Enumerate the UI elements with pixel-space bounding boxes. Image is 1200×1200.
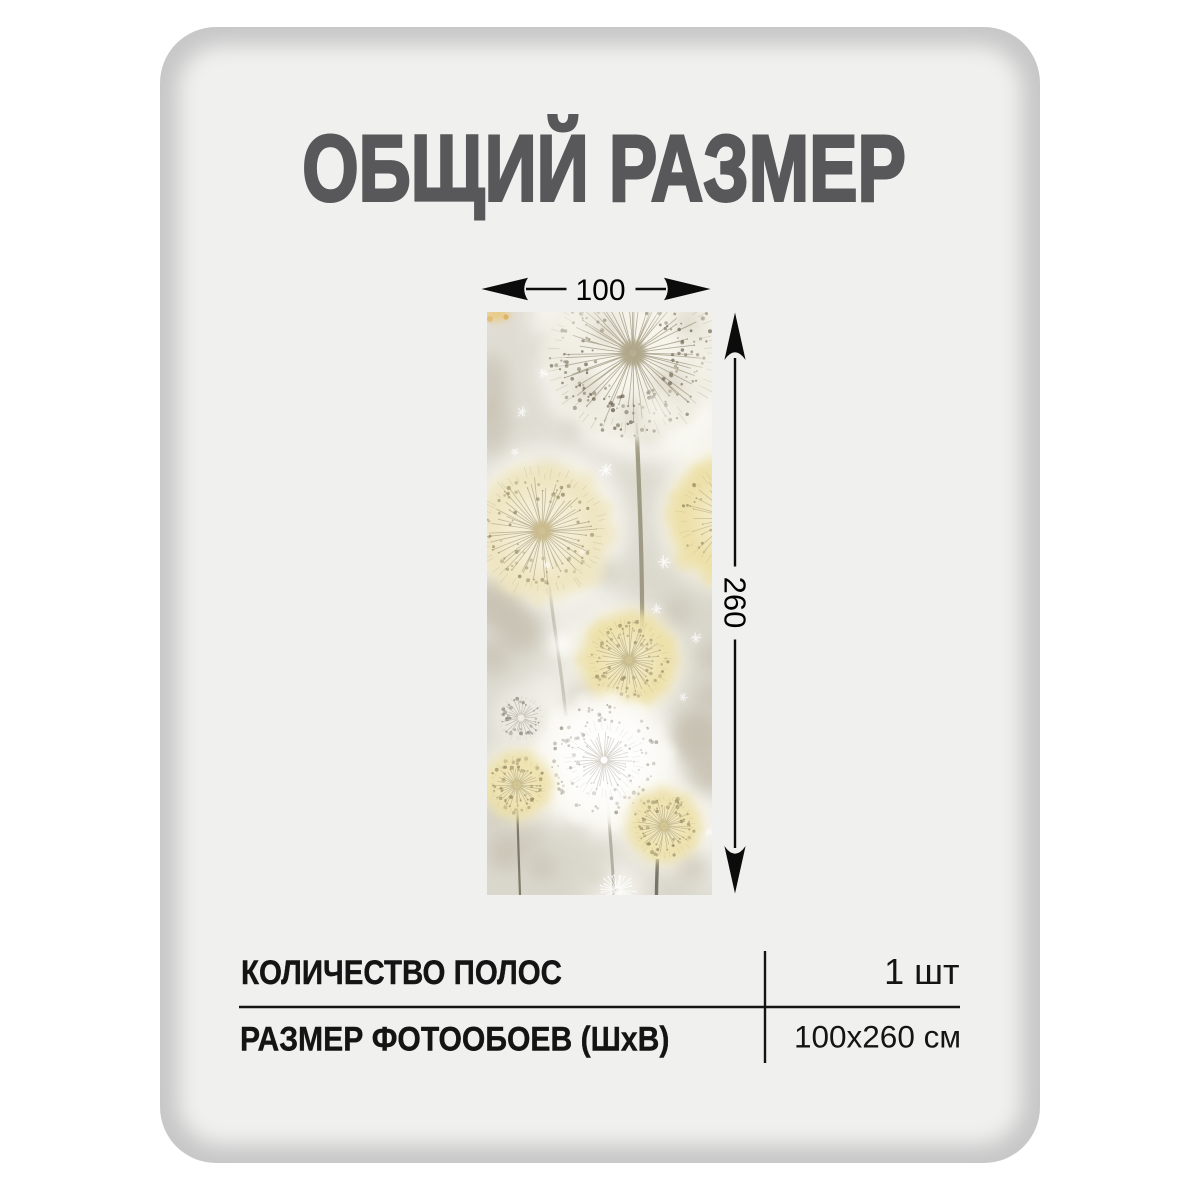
svg-text:1 шт: 1 шт: [884, 951, 959, 992]
svg-text:РАЗМЕР ФОТООБОЕВ (ШхВ): РАЗМЕР ФОТООБОЕВ (ШхВ): [240, 1020, 669, 1058]
svg-text:100: 100: [575, 274, 625, 307]
svg-text:260: 260: [718, 577, 753, 629]
svg-text:100x260 см: 100x260 см: [794, 1019, 961, 1055]
svg-text:КОЛИЧЕСТВО ПОЛОС: КОЛИЧЕСТВО ПОЛОС: [241, 953, 562, 991]
svg-text:ОБЩИЙ РАЗМЕР: ОБЩИЙ РАЗМЕР: [302, 115, 906, 220]
